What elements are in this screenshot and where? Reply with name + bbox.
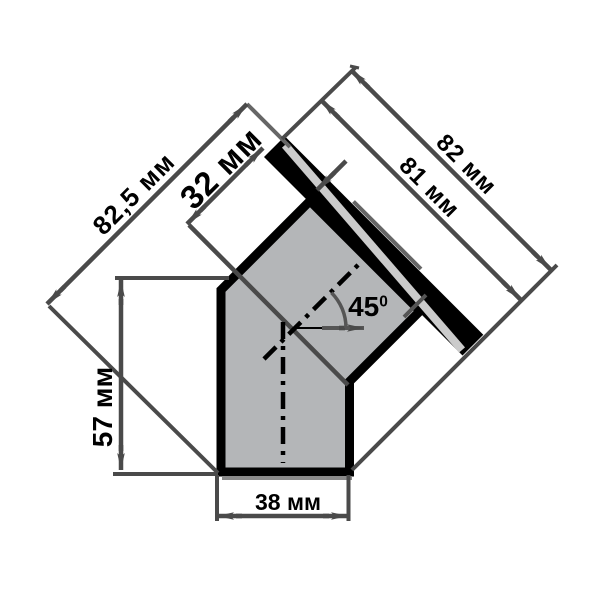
svg-text:38 мм: 38 мм [255,489,321,515]
svg-text:32 мм: 32 мм [173,120,270,217]
svg-text:57 мм: 57 мм [87,367,118,447]
svg-text:82,5 мм: 82,5 мм [87,147,181,241]
